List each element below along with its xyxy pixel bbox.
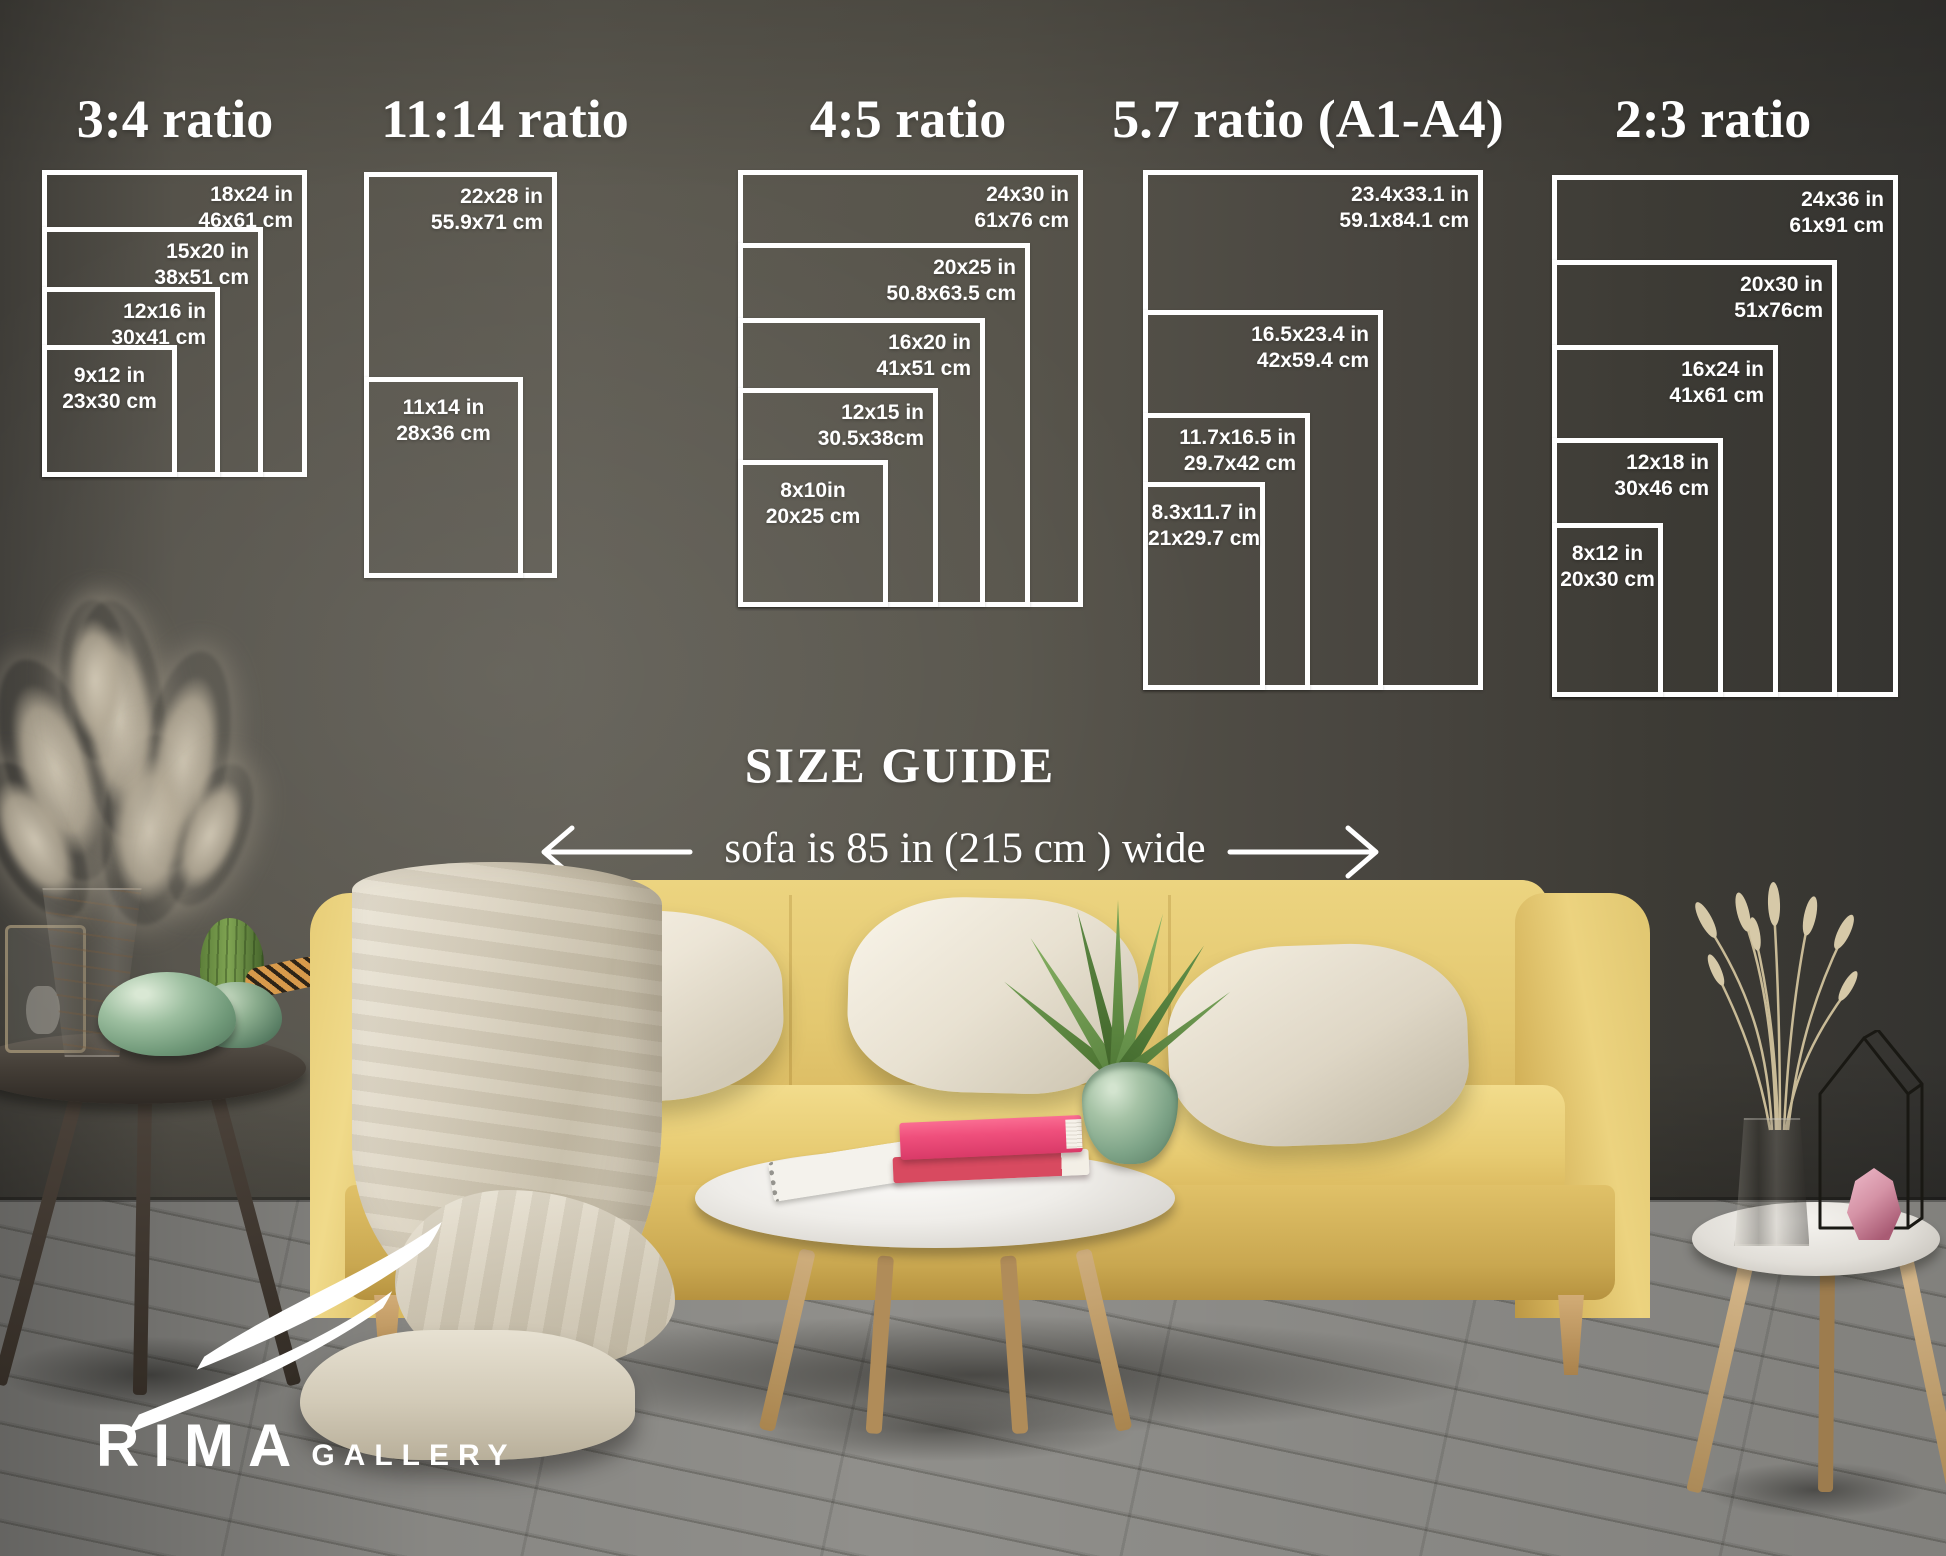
- frame-size-label: 8.3x11.7 in 21x29.7 cm: [1148, 500, 1260, 551]
- ratio-group-title: 3:4 ratio: [77, 88, 273, 150]
- glass-vase: [1733, 1118, 1811, 1246]
- frame-size-label: 8x12 in 20x30 cm: [1560, 541, 1655, 592]
- size-guide-poster: 3:4 ratio18x24 in 46x61 cm15x20 in 38x51…: [0, 0, 1946, 1556]
- size-frame: 8.3x11.7 in 21x29.7 cm: [1143, 482, 1265, 690]
- frame-size-label: 18x24 in 46x61 cm: [198, 182, 293, 233]
- size-frame: 11x14 in 28x36 cm: [364, 377, 523, 578]
- size-frame: 8x10in 20x25 cm: [738, 460, 888, 607]
- logo: RIMA GALLERY: [96, 1416, 517, 1476]
- size-guide-heading: SIZE GUIDE: [745, 736, 1055, 794]
- frame-size-label: 24x30 in 61x76 cm: [974, 182, 1069, 233]
- frame-size-label: 22x28 in 55.9x71 cm: [431, 184, 543, 235]
- book-top-pink: [899, 1115, 1082, 1160]
- frame-size-label: 12x15 in 30.5x38cm: [818, 400, 924, 451]
- frame-size-label: 20x25 in 50.8x63.5 cm: [886, 255, 1016, 306]
- logo-brand: RIMA: [96, 1416, 305, 1476]
- ratio-group-title: 4:5 ratio: [810, 88, 1006, 150]
- frame-size-label: 8x10in 20x25 cm: [766, 478, 861, 529]
- frame-size-label: 24x36 in 61x91 cm: [1789, 187, 1884, 238]
- sofa-leg: [1554, 1295, 1588, 1375]
- frame-size-label: 11x14 in 28x36 cm: [396, 395, 491, 446]
- logo-suffix: GALLERY: [311, 1441, 516, 1471]
- frame-size-label: 9x12 in 23x30 cm: [62, 363, 157, 414]
- frame-size-label: 20x30 in 51x76cm: [1734, 272, 1823, 323]
- frame-size-label: 12x16 in 30x41 cm: [111, 299, 206, 350]
- size-frame: 8x12 in 20x30 cm: [1552, 523, 1663, 697]
- frame-size-label: 16x24 in 41x61 cm: [1669, 357, 1764, 408]
- ratio-group-title: 11:14 ratio: [381, 88, 628, 150]
- rima-swoosh-icon: [95, 1222, 465, 1437]
- frame-size-label: 23.4x33.1 in 59.1x84.1 cm: [1339, 182, 1469, 233]
- ratio-group-title: 2:3 ratio: [1615, 88, 1811, 150]
- frame-size-label: 15x20 in 38x51 cm: [154, 239, 249, 290]
- size-frame: 9x12 in 23x30 cm: [42, 345, 177, 477]
- right-table-leg: [1818, 1264, 1835, 1492]
- ratio-group-title: 5.7 ratio (A1-A4): [1112, 88, 1503, 150]
- frame-size-label: 16.5x23.4 in 42x59.4 cm: [1251, 322, 1369, 373]
- pillow-right: [1165, 940, 1472, 1150]
- frame-size-label: 16x20 in 41x51 cm: [876, 330, 971, 381]
- frame-size-label: 11.7x16.5 in 29.7x42 cm: [1179, 425, 1296, 476]
- frame-size-label: 12x18 in 30x46 cm: [1614, 450, 1709, 501]
